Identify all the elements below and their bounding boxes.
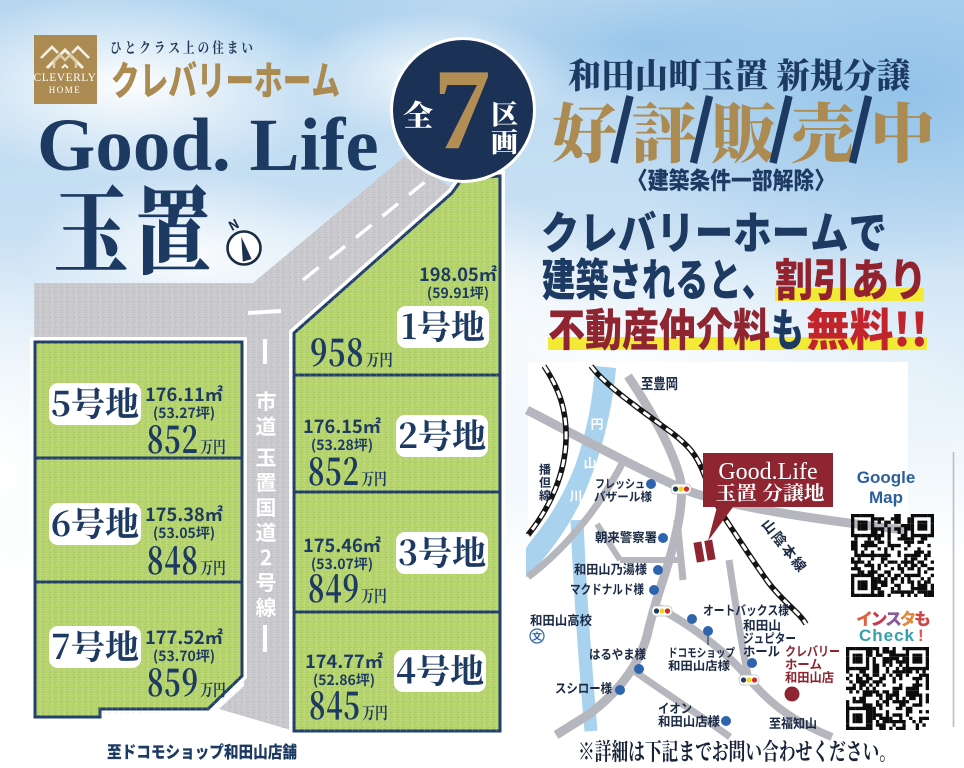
svg-text:Good.Life: Good.Life [718, 459, 817, 485]
svg-text:Good. Life: Good. Life [37, 104, 379, 187]
svg-text:Map: Map [869, 488, 903, 507]
svg-text:Check: Check [859, 626, 915, 645]
svg-text:7: 7 [433, 46, 491, 173]
svg-text:!: ! [918, 626, 924, 645]
svg-text:HOME: HOME [49, 85, 82, 95]
svg-text:Google: Google [857, 468, 916, 487]
svg-text:CLEVERLY: CLEVERLY [34, 72, 97, 84]
